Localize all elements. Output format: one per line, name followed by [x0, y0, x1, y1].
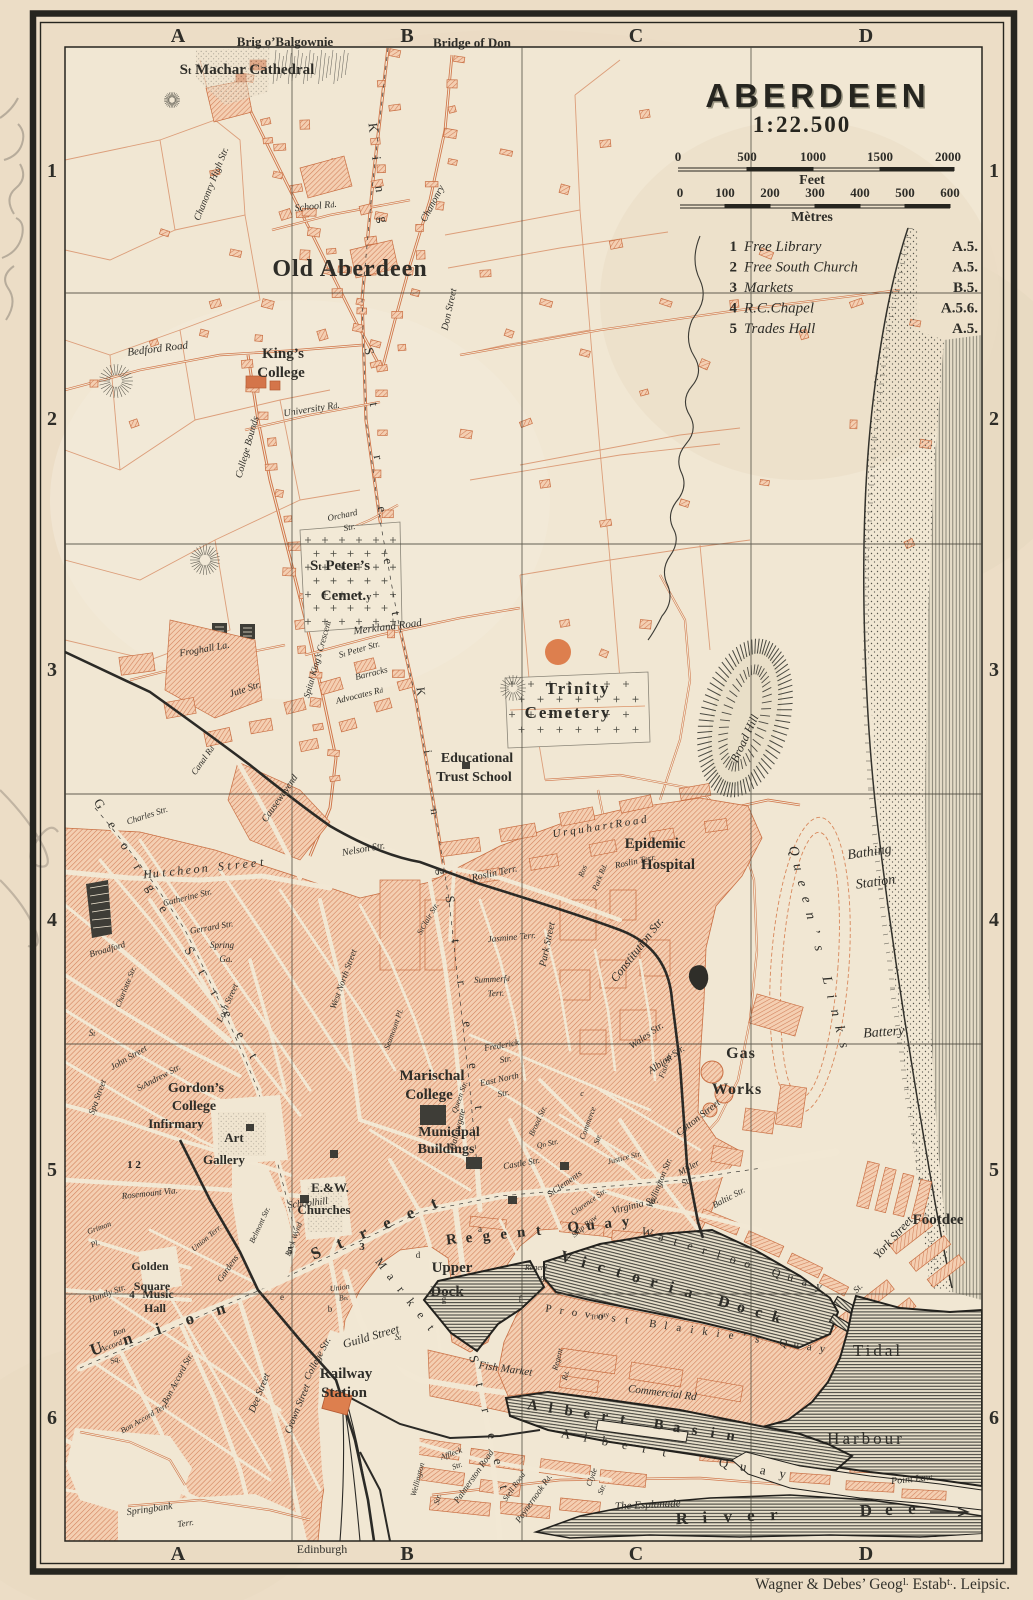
svg-text:300: 300 — [805, 185, 825, 200]
svg-text:1 2: 1 2 — [127, 1159, 141, 1171]
svg-text:5: 5 — [47, 1159, 57, 1181]
svg-text:A: A — [171, 1543, 186, 1565]
svg-text:R: R — [675, 1509, 689, 1528]
svg-text:d: d — [416, 1250, 421, 1260]
svg-text:2: 2 — [730, 260, 738, 276]
svg-text:Old Aberdeen: Old Aberdeen — [272, 256, 427, 282]
svg-text:Br.: Br. — [539, 1275, 548, 1284]
svg-text:Edinburgh: Edinburgh — [297, 1542, 347, 1556]
svg-text:Educational: Educational — [441, 751, 513, 766]
svg-text:r: r — [770, 1505, 779, 1524]
svg-text:Brig o’Balgownie: Brig o’Balgownie — [237, 34, 334, 49]
svg-text:Marischal: Marischal — [400, 1068, 465, 1084]
svg-text:1: 1 — [47, 160, 57, 182]
svg-text:A.5.6.: A.5.6. — [941, 301, 978, 317]
svg-text:6: 6 — [989, 1407, 999, 1429]
svg-text:1500: 1500 — [867, 149, 893, 164]
svg-text:Upper: Upper — [432, 1260, 473, 1276]
svg-text:Mètres: Mètres — [791, 210, 833, 225]
svg-text:b: b — [328, 1304, 333, 1314]
svg-text:2000: 2000 — [935, 149, 961, 164]
svg-text:4: 4 — [730, 301, 738, 317]
svg-text:Art: Art — [224, 1130, 244, 1145]
svg-text:2: 2 — [989, 408, 999, 430]
svg-text:500: 500 — [737, 149, 757, 164]
svg-text:College: College — [172, 1099, 216, 1114]
svg-text:Tidal: Tidal — [853, 1341, 903, 1360]
svg-text:Works: Works — [712, 1081, 762, 1098]
svg-text:C: C — [629, 25, 643, 47]
svg-text:St: St — [395, 1332, 403, 1342]
svg-text:2: 2 — [47, 408, 57, 430]
svg-text:Wagner & Debes’ Geogl. Estabt.: Wagner & Debes’ Geogl. Estabt.. Leipsic. — [755, 1576, 1010, 1593]
svg-text:4: 4 — [129, 1289, 135, 1301]
svg-text:6: 6 — [47, 1407, 57, 1429]
svg-text:A.5.: A.5. — [952, 260, 978, 276]
svg-text:Golden: Golden — [131, 1259, 169, 1273]
svg-text:Trust School: Trust School — [436, 770, 512, 785]
svg-text:Ga.: Ga. — [219, 954, 232, 964]
svg-text:Markets: Markets — [743, 280, 793, 296]
svg-text:Free Library: Free Library — [743, 239, 822, 255]
svg-text:Hall: Hall — [144, 1301, 167, 1315]
svg-text:c: c — [580, 1089, 584, 1098]
svg-text:A: A — [171, 25, 186, 47]
svg-text:Station: Station — [321, 1385, 368, 1401]
svg-text:0: 0 — [675, 149, 682, 164]
svg-text:4: 4 — [47, 909, 57, 931]
svg-text:E.&W.: E.&W. — [311, 1180, 349, 1195]
svg-text:1:22.500: 1:22.500 — [753, 112, 851, 137]
svg-text:C: C — [629, 1543, 643, 1565]
svg-text:R: R — [445, 1231, 458, 1248]
svg-text:ABERDEEN: ABERDEEN — [705, 77, 930, 114]
svg-text:1000: 1000 — [800, 149, 826, 164]
svg-text:D: D — [859, 1501, 872, 1520]
svg-text:5: 5 — [730, 321, 738, 337]
svg-text:v: v — [723, 1507, 733, 1526]
svg-text:f: f — [519, 1294, 522, 1304]
svg-text:Regent: Regent — [524, 1263, 548, 1272]
svg-text:B: B — [400, 25, 413, 47]
svg-text:3: 3 — [989, 659, 999, 681]
svg-text:0: 0 — [677, 185, 684, 200]
svg-text:e: e — [885, 1500, 894, 1519]
svg-text:3: 3 — [47, 659, 57, 681]
svg-text:B: B — [400, 1543, 413, 1565]
svg-text:D: D — [859, 1543, 873, 1565]
svg-text:R.C.Chapel: R.C.Chapel — [743, 301, 814, 317]
svg-text:Summerfd: Summerfd — [474, 973, 510, 985]
svg-text:Str.: Str. — [499, 1053, 512, 1065]
svg-text:Gordon’s: Gordon’s — [168, 1081, 225, 1096]
svg-text:Epidemic: Epidemic — [625, 836, 686, 852]
svg-text:Terr.: Terr. — [487, 988, 504, 999]
svg-text:e: e — [280, 1292, 284, 1302]
svg-text:1: 1 — [989, 160, 999, 182]
svg-text:St: St — [89, 1028, 97, 1038]
svg-text:Footdee: Footdee — [913, 1212, 964, 1228]
svg-text:3: 3 — [359, 1241, 365, 1253]
svg-text:St Machar Cathedral: St Machar Cathedral — [180, 62, 315, 78]
svg-text:Free South Church: Free South Church — [743, 260, 858, 276]
svg-text:Gallery: Gallery — [203, 1152, 245, 1167]
svg-text:Trinity: Trinity — [546, 679, 611, 698]
svg-text:a: a — [478, 1224, 482, 1234]
svg-text:King’s: King’s — [262, 346, 304, 362]
svg-text:Buildings: Buildings — [418, 1142, 475, 1157]
svg-text:400: 400 — [850, 185, 870, 200]
svg-text:i: i — [702, 1508, 708, 1527]
svg-text:Cemet.y: Cemet.y — [321, 588, 371, 604]
svg-text:4: 4 — [989, 909, 999, 931]
svg-text:200: 200 — [760, 185, 780, 200]
svg-text:3: 3 — [730, 280, 738, 296]
svg-text:College: College — [405, 1087, 453, 1103]
svg-text:100: 100 — [715, 185, 735, 200]
svg-text:5: 5 — [989, 1159, 999, 1181]
svg-text:1: 1 — [730, 239, 738, 255]
svg-text:Railway: Railway — [320, 1366, 373, 1382]
svg-text:B.5.: B.5. — [953, 280, 978, 296]
svg-text:Cemetery: Cemetery — [525, 703, 612, 722]
svg-text:Bridge of Don: Bridge of Don — [433, 35, 512, 50]
svg-text:College: College — [257, 365, 305, 381]
svg-text:Trades Hall: Trades Hall — [744, 321, 815, 337]
svg-text:A.5.: A.5. — [952, 239, 978, 255]
svg-text:e: e — [908, 1499, 917, 1518]
svg-text:A.5.: A.5. — [952, 321, 978, 337]
svg-text:Spring: Spring — [210, 940, 235, 950]
svg-text:Dock: Dock — [430, 1284, 464, 1300]
svg-text:Infirmary: Infirmary — [148, 1116, 204, 1131]
svg-text:500: 500 — [895, 185, 915, 200]
svg-text:g: g — [442, 1294, 447, 1304]
svg-text:Harbour: Harbour — [827, 1429, 905, 1448]
svg-text:D: D — [859, 25, 873, 47]
svg-text:600: 600 — [940, 185, 960, 200]
svg-text:Battery: Battery — [863, 1024, 906, 1042]
